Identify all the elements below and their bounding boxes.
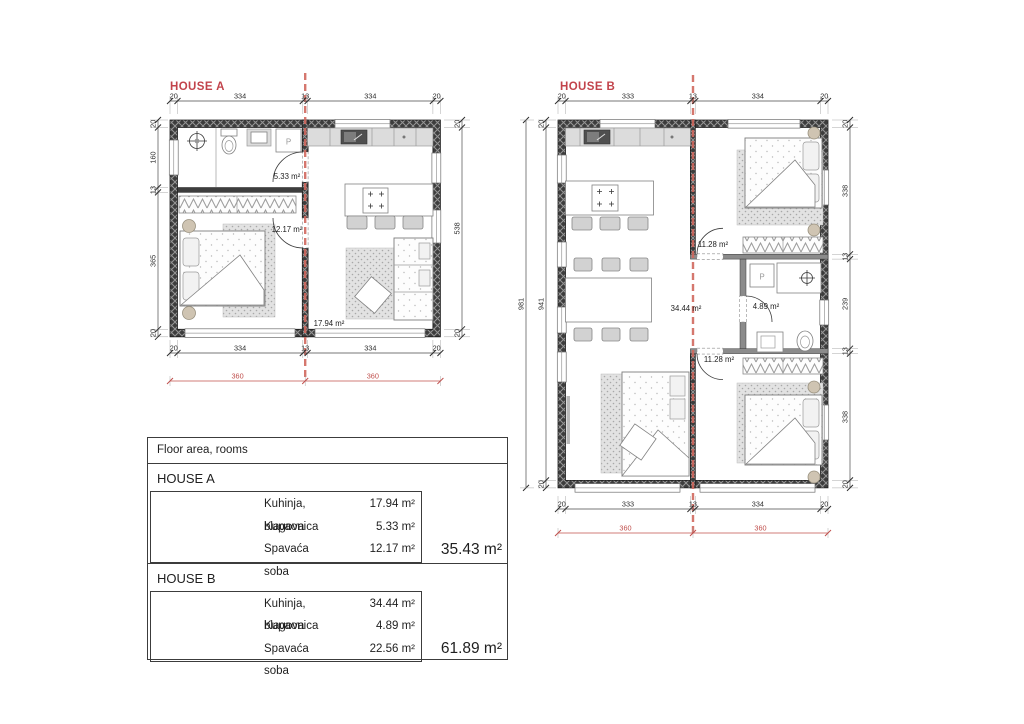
svg-text:20: 20 xyxy=(149,329,158,337)
svg-text:20: 20 xyxy=(558,92,566,101)
stove-icon xyxy=(363,188,388,213)
dining-table xyxy=(566,258,652,341)
house-b-bedroom-bottom xyxy=(697,354,823,483)
svg-text:334: 334 xyxy=(752,500,764,509)
bar-stool xyxy=(572,217,592,230)
area-table: Floor area, rooms HOUSE A Kuhinja, blago… xyxy=(147,437,508,660)
washing-machine: P xyxy=(750,264,774,287)
svg-text:20: 20 xyxy=(537,480,546,488)
svg-text:20: 20 xyxy=(433,344,441,353)
bed xyxy=(180,231,265,306)
sink-icon xyxy=(777,263,821,293)
svg-text:334: 334 xyxy=(752,92,764,101)
svg-text:20: 20 xyxy=(149,120,158,128)
room-value: 34.44 m² xyxy=(323,593,421,616)
svg-text:P: P xyxy=(759,273,764,282)
cabinet xyxy=(757,332,783,352)
wardrobe xyxy=(179,196,296,213)
bed xyxy=(745,395,822,465)
dining-chair xyxy=(602,328,620,341)
bar-stool xyxy=(600,217,620,230)
svg-text:13: 13 xyxy=(301,92,309,101)
dining-chair xyxy=(630,258,648,271)
room-area-label: 17.94 m² xyxy=(314,319,345,328)
room-label: Kupaonica xyxy=(264,615,323,638)
bar-stool xyxy=(347,216,367,229)
house-b-title: HOUSE B xyxy=(560,81,615,93)
kitchen-counter xyxy=(308,128,433,146)
svg-text:20: 20 xyxy=(558,500,566,509)
svg-text:20: 20 xyxy=(453,120,462,128)
section-total: 61.89 m² xyxy=(422,591,507,663)
bar-stool xyxy=(628,217,648,230)
section-house-a: HOUSE A Kuhinja, blagova 17.94 m² Kupaon… xyxy=(148,464,507,564)
room-row: Kuhinja, blagova 34.44 m² xyxy=(151,593,421,616)
svg-text:360: 360 xyxy=(367,372,379,381)
room-area-label: 12.17 m² xyxy=(272,225,303,234)
room-label: Kuhinja, blagova xyxy=(264,493,323,516)
room-area-label: 34.44 m² xyxy=(671,304,702,313)
house-a-kitchen xyxy=(308,128,433,320)
living-sofa-area xyxy=(346,238,433,320)
house-b-dim-left: 20 941 20 xyxy=(537,117,557,491)
room-value: 5.33 m² xyxy=(323,516,421,539)
dining-chair xyxy=(602,258,620,271)
bar-stool xyxy=(375,216,395,229)
section-name: HOUSE B xyxy=(148,564,507,591)
door-opening xyxy=(697,348,723,354)
door-opening xyxy=(740,296,747,322)
svg-text:13: 13 xyxy=(149,186,158,194)
svg-text:20: 20 xyxy=(537,120,546,128)
house-a-dim-bottom: 20 334 13 334 20 xyxy=(167,340,443,358)
room-label: Spavaća soba xyxy=(264,538,323,561)
svg-text:20: 20 xyxy=(820,92,828,101)
bedside-table xyxy=(808,127,820,139)
shower-icon xyxy=(187,131,207,151)
stove-icon xyxy=(592,185,618,211)
cabinet-handle xyxy=(671,136,674,139)
svg-text:334: 334 xyxy=(364,344,376,353)
svg-text:334: 334 xyxy=(364,92,376,101)
svg-text:160: 160 xyxy=(149,151,158,163)
sink-icon xyxy=(247,129,271,146)
room-row: Kupaonica 4.89 m² xyxy=(151,615,421,638)
bedside-table xyxy=(183,307,196,320)
svg-text:333: 333 xyxy=(622,92,634,101)
house-b-bedroom-top xyxy=(697,127,823,254)
room-row: Kupaonica 5.33 m² xyxy=(151,516,421,539)
house-a-title: HOUSE A xyxy=(170,81,225,93)
room-label: Kuhinja, blagova xyxy=(264,593,323,616)
svg-text:13: 13 xyxy=(689,92,697,101)
door-opening xyxy=(697,254,723,260)
svg-text:360: 360 xyxy=(232,372,244,381)
bedside-table xyxy=(808,224,820,236)
floor-plan-sheet: HOUSE A xyxy=(0,0,1024,724)
house-a-dim-right: 20 538 20 xyxy=(444,117,470,340)
house-b-plan: HOUSE B xyxy=(517,75,859,538)
house-b-dim-left-outer: 981 xyxy=(517,117,535,491)
svg-text:981: 981 xyxy=(517,298,526,310)
washing-machine: P xyxy=(276,129,301,152)
kitchen-island xyxy=(566,181,654,230)
svg-text:13: 13 xyxy=(841,347,850,355)
room-value: 17.94 m² xyxy=(323,493,421,516)
svg-text:334: 334 xyxy=(234,92,246,101)
room-area-label: 11.28 m² xyxy=(704,355,735,364)
svg-text:338: 338 xyxy=(841,411,850,423)
dining-chair xyxy=(630,328,648,341)
svg-text:941: 941 xyxy=(537,298,546,310)
section-total: 35.43 m² xyxy=(422,491,507,563)
svg-text:20: 20 xyxy=(841,480,850,488)
house-a-partition-wall xyxy=(178,188,303,193)
svg-text:P: P xyxy=(286,138,291,147)
dining-chair xyxy=(574,258,592,271)
bedside-table xyxy=(808,381,820,393)
bedside-table xyxy=(183,220,196,233)
svg-text:365: 365 xyxy=(149,255,158,267)
dining-chair xyxy=(574,328,592,341)
living-sofa-area xyxy=(567,372,690,476)
svg-text:13: 13 xyxy=(301,344,309,353)
table-header: Floor area, rooms xyxy=(148,438,507,464)
section-name: HOUSE A xyxy=(148,464,507,491)
room-list: Kuhinja, blagova 17.94 m² Kupaonica 5.33… xyxy=(150,491,422,563)
svg-text:360: 360 xyxy=(754,524,766,533)
house-b-dim-right: 20 338 13 239 13 338 20 xyxy=(832,117,858,491)
tv xyxy=(567,396,571,444)
bedside-table xyxy=(808,471,820,483)
svg-text:20: 20 xyxy=(170,92,178,101)
toilet-icon xyxy=(797,331,813,351)
svg-text:20: 20 xyxy=(453,329,462,337)
cabinet-handle xyxy=(403,136,406,139)
room-area-label: 11.28 m² xyxy=(698,240,729,249)
house-b-kitchen xyxy=(566,128,691,476)
bar-stool xyxy=(403,216,423,229)
room-area-label: 5.33 m² xyxy=(274,172,301,181)
bed xyxy=(745,138,822,208)
room-row: Spavaća soba 22.56 m² xyxy=(151,638,421,661)
kitchen-island xyxy=(345,184,433,229)
house-b-dim-red: 360 360 xyxy=(555,524,831,539)
house-a-dim-left: 20 160 13 365 20 xyxy=(149,117,169,340)
room-value: 22.56 m² xyxy=(323,638,421,661)
svg-text:538: 538 xyxy=(453,222,462,234)
svg-text:333: 333 xyxy=(622,500,634,509)
toilet-icon xyxy=(221,129,237,154)
room-label: Kupaonica xyxy=(264,516,323,539)
svg-text:360: 360 xyxy=(619,524,631,533)
room-area-label: 4.89 m² xyxy=(753,302,780,311)
svg-text:338: 338 xyxy=(841,185,850,197)
room-list: Kuhinja, blagova 34.44 m² Kupaonica 4.89… xyxy=(150,591,422,663)
svg-text:20: 20 xyxy=(433,92,441,101)
room-row: Kuhinja, blagova 17.94 m² xyxy=(151,493,421,516)
room-value: 12.17 m² xyxy=(323,538,421,561)
house-b-dim-bottom: 20 333 13 334 20 xyxy=(555,496,831,514)
svg-text:20: 20 xyxy=(170,344,178,353)
svg-text:334: 334 xyxy=(234,344,246,353)
section-house-b: HOUSE B Kuhinja, blagova 34.44 m² Kupaon… xyxy=(148,564,507,663)
svg-text:13: 13 xyxy=(689,500,697,509)
house-a-bedroom xyxy=(179,196,303,320)
room-label: Spavaća soba xyxy=(264,638,323,661)
svg-text:20: 20 xyxy=(820,500,828,509)
svg-text:13: 13 xyxy=(841,253,850,261)
house-a-plan: HOUSE A xyxy=(149,73,471,386)
svg-text:239: 239 xyxy=(841,298,850,310)
svg-text:20: 20 xyxy=(841,120,850,128)
room-value: 4.89 m² xyxy=(323,615,421,638)
room-row: Spavaća soba 12.17 m² xyxy=(151,538,421,561)
